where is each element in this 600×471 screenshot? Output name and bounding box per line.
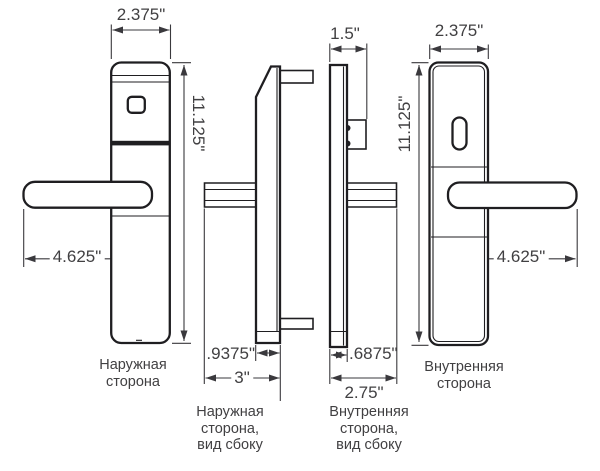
exterior-handle [24, 182, 153, 208]
exterior-handle-side [205, 183, 258, 207]
caption-exterior-front: Наружная сторона [63, 357, 203, 390]
view-interior-front [430, 63, 577, 346]
caption-interior-side: Внутренняя сторона, вид сбоку [299, 404, 439, 454]
interior-handle [448, 183, 577, 209]
exterior-side-profile [256, 67, 280, 344]
divider-band [112, 141, 169, 146]
mounting-tab-bottom [277, 319, 313, 330]
dim-exterior-handle-length: 4.625" [50, 247, 105, 267]
dim-interior-side-top-depth: 1.5" [330, 24, 360, 44]
dim-interior-width: 2.375" [435, 21, 484, 41]
view-interior-side [330, 65, 397, 347]
dim-interior-side-thickness: .6875" [349, 344, 398, 364]
dim-exterior-height: 11.125" [188, 95, 208, 152]
interior-handle-side [347, 183, 397, 207]
interior-side-profile [330, 65, 347, 347]
dim-interior-height: 11.125" [395, 96, 415, 153]
view-exterior-front [24, 63, 170, 344]
dim-interior-side-depth: 2.75" [344, 383, 383, 403]
view-exterior-side [205, 67, 314, 344]
dim-interior-handle-length: 4.625" [494, 247, 549, 267]
lock-dimensions-diagram: 2.375" 11.125" 4.625" .9375" 3" 1.5" .68… [0, 0, 600, 471]
caption-interior-front: Внутренняя сторона [394, 359, 534, 392]
lock-drawing [0, 0, 600, 471]
dim-exterior-side-depth: 3" [231, 368, 253, 388]
caption-exterior-side: Наружная сторона, вид сбоку [160, 404, 300, 454]
dim-exterior-width: 2.375" [117, 5, 166, 25]
spindle-pin-top [277, 71, 313, 84]
dim-exterior-side-thickness: .9375" [206, 344, 255, 364]
